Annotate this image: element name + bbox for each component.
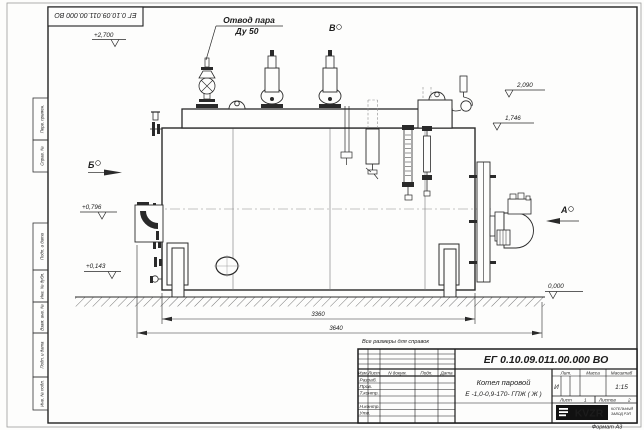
- boiler-drawing-canvas: Перв. примен. Справ. № Подп. и дата Инв.…: [0, 0, 644, 430]
- ground-hatch: [75, 297, 545, 307]
- view-label: Б: [88, 160, 95, 170]
- callout-text: Отвод пара: [223, 15, 275, 25]
- drawing-sheet: Перв. примен. Справ. № Подп. и дата Инв.…: [0, 0, 644, 430]
- pressure-gauge-siphon: [452, 76, 472, 111]
- company-logo: KVZR: [556, 405, 608, 420]
- dimension-value: 3640: [329, 326, 343, 332]
- product-name: Котел паровой: [477, 378, 532, 387]
- tb-header-cell: Изм.: [358, 371, 368, 376]
- sheet-value: 1: [584, 398, 587, 403]
- scale-label: Масштаб: [611, 371, 633, 376]
- margin-label: Перв. примен.: [40, 105, 45, 134]
- sheet-label: Лист: [559, 398, 572, 403]
- elevation-value: +0,796: [82, 204, 102, 211]
- top-stamp: ЕГ 0.10.09.011.00.000 ВО: [48, 7, 143, 26]
- mass-label: Масса: [586, 371, 600, 376]
- margin-label: Подп. и дата: [40, 341, 45, 369]
- company-logo-text: KVZR: [575, 408, 604, 420]
- tb-sign-row: Разраб.: [360, 378, 377, 384]
- elevation-value: 2,090: [516, 82, 533, 89]
- tb-sign-row: Н.контр.: [360, 404, 380, 410]
- company-name: ЗАВОД РЭП: [611, 412, 632, 416]
- callout-text: Ду 50: [235, 26, 259, 36]
- view-label: В: [329, 23, 336, 33]
- margin-label: Справ. №: [40, 146, 45, 166]
- tb-header-cell: Лист: [367, 371, 380, 376]
- tb-sign-row: Утв.: [360, 411, 371, 417]
- stamp-doc-number: ЕГ 0.10.09.011.00.000 ВО: [54, 11, 137, 18]
- elevation-value: 0,000: [548, 283, 564, 290]
- format-note: Формат А3: [592, 425, 623, 430]
- doc-number: ЕГ 0.10.09.011.00.000 ВО: [484, 354, 609, 366]
- margin-label: Инв. № подл.: [40, 380, 45, 407]
- tb-header-cell: N докум.: [388, 371, 407, 376]
- reference-note: Все размеры для справок: [362, 339, 429, 345]
- safety-valve: [319, 50, 341, 108]
- steam-outlet-valve: [196, 58, 218, 108]
- safety-valve: [261, 50, 283, 108]
- view-marker-b: Б: [88, 160, 122, 176]
- elevation-value: +2,700: [94, 32, 114, 39]
- header-box: [418, 87, 452, 128]
- elevation-value: 1,746: [505, 115, 521, 122]
- top-left-fitting: [150, 112, 162, 136]
- view-label: А: [560, 205, 568, 215]
- tb-header-cell: Подп.: [420, 371, 432, 376]
- lit-label: Лит.: [560, 371, 572, 376]
- dimension-value: 3360: [311, 312, 325, 318]
- tb-sign-row: Пров.: [360, 384, 373, 390]
- margin-label: Взам. инв. №: [40, 304, 45, 331]
- lifting-lug: [229, 101, 245, 109]
- burner: [490, 193, 534, 248]
- product-code: Е -1,0-0,9-170- ГПЖ ( Ж ): [465, 391, 542, 398]
- scale-value: 1:15: [615, 384, 628, 391]
- tb-header-cell: Дата: [439, 371, 453, 376]
- view-marker-v: В: [329, 23, 341, 33]
- sheets-value: 2: [627, 398, 631, 403]
- tb-sign-row: Т.контр.: [360, 391, 379, 397]
- lit-value: И: [554, 384, 559, 391]
- title-block: ЕГ 0.10.09.011.00.000 ВО Изм. Лист N док…: [358, 349, 637, 423]
- margin-label: Инв. № дубл.: [40, 273, 45, 299]
- elevation-value: +0,143: [86, 263, 106, 270]
- blowdown-elbow: [135, 202, 163, 242]
- sheets-label: Листов: [598, 398, 616, 403]
- view-marker-a: А: [546, 205, 579, 224]
- company-name: КОТЕЛЬНЫЙ: [611, 407, 634, 411]
- margin-label: Подп. и дата: [40, 232, 45, 260]
